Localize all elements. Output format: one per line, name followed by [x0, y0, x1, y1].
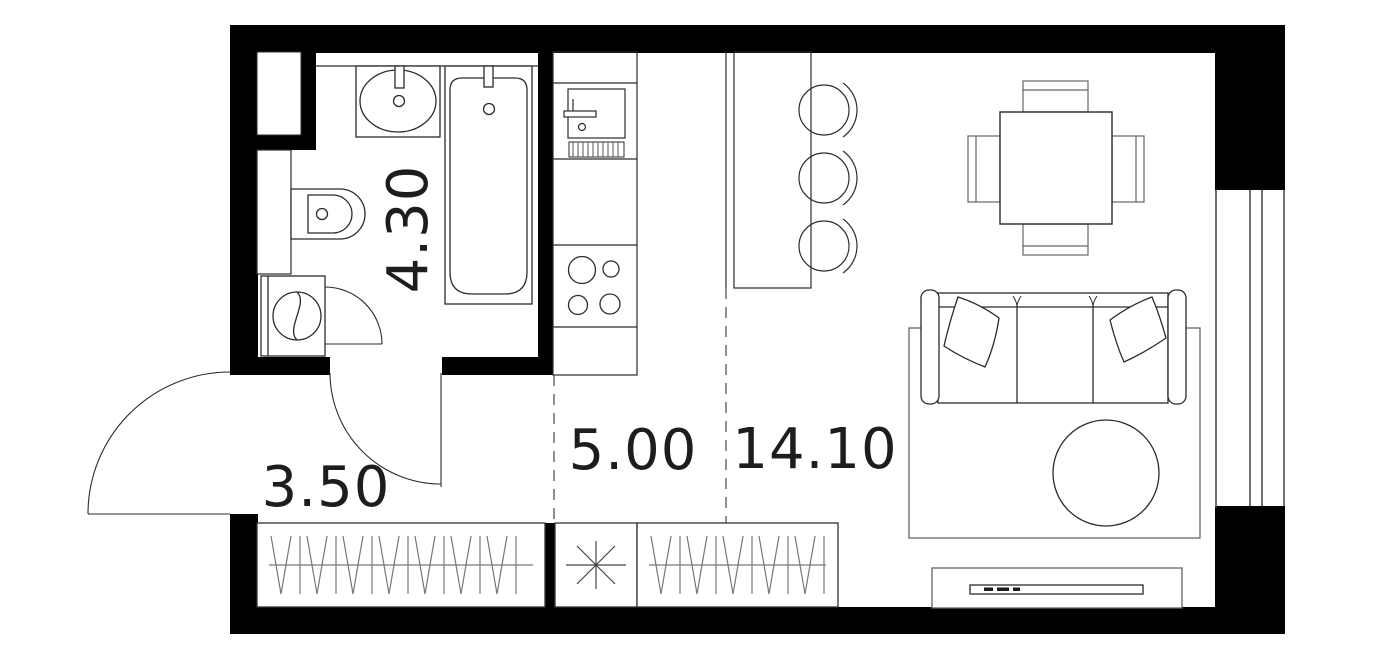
kitchen-sink: [564, 89, 625, 138]
bar-stools: [799, 83, 857, 273]
bar-stool: [799, 83, 857, 137]
toilet: [291, 189, 365, 239]
sofa-armrest: [921, 290, 939, 404]
floor-plan-drawing: [0, 0, 1377, 661]
entrance-door: [88, 372, 230, 514]
tv-stand: [932, 568, 1182, 608]
stove: [569, 257, 621, 315]
dining-chair: [1023, 224, 1088, 255]
washing-machine: [261, 276, 325, 356]
tv: [970, 585, 1143, 594]
bar-counter: [726, 52, 811, 288]
window-right: [1216, 190, 1284, 508]
area-label-bathroom: 4.30: [381, 165, 437, 294]
washer-place: [555, 523, 637, 607]
area-label-living-room: 14.10: [732, 422, 897, 478]
area-label-hallway: 3.50: [262, 460, 391, 516]
bar-stool: [799, 219, 857, 273]
dining-chair: [1023, 81, 1088, 112]
dish-drainer: [569, 142, 624, 157]
sofa: [921, 290, 1186, 404]
dining-table: [1000, 112, 1112, 224]
washbasin: [356, 66, 440, 137]
coffee-table: [1053, 420, 1159, 526]
sofa-armrest: [1168, 290, 1186, 404]
zone-boundaries: [554, 288, 726, 523]
dining-chair: [968, 136, 1000, 202]
closet-door: [325, 287, 382, 344]
bar-stool: [799, 151, 857, 205]
duct-furring: [257, 150, 291, 274]
ventilation-shaft: [257, 52, 301, 135]
kitchen: [553, 52, 857, 375]
living-room: [909, 81, 1200, 608]
dining-chair: [1112, 136, 1144, 202]
bathtub: [445, 66, 532, 304]
area-label-kitchen: 5.00: [569, 423, 698, 479]
floor-plan: 4.30 3.50 5.00 14.10: [0, 0, 1377, 661]
